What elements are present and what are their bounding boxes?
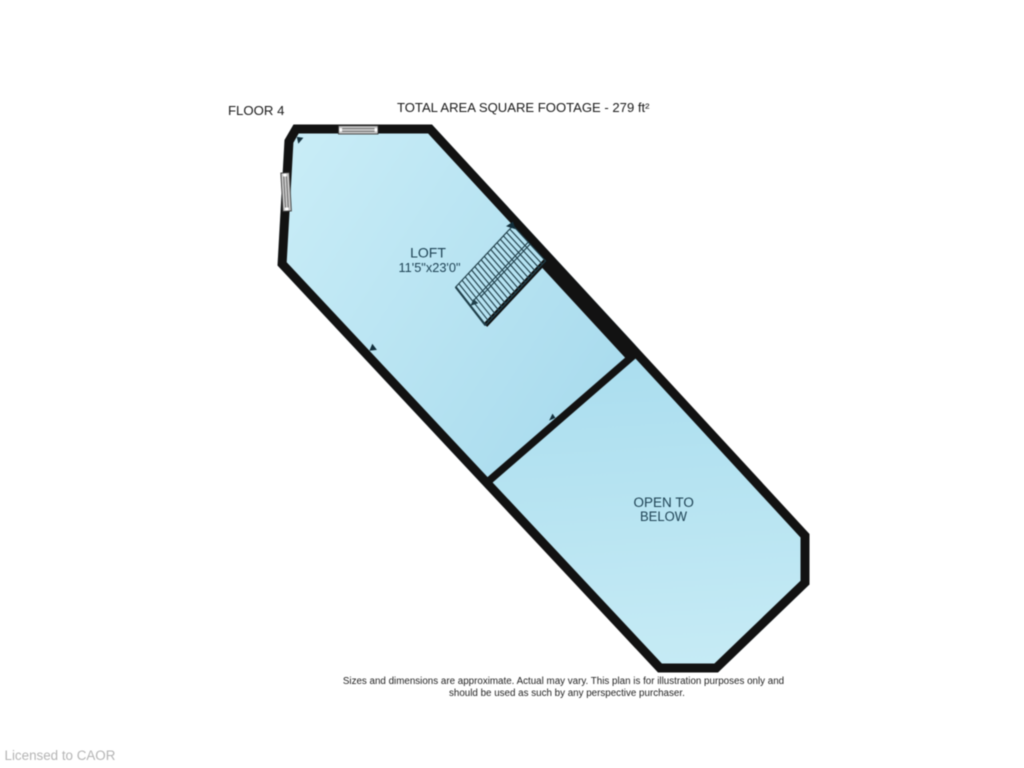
svg-text:11'5"x23'0": 11'5"x23'0" [399,261,461,275]
svg-text:BELOW: BELOW [640,509,687,524]
svg-text:TOTAL AREA SQUARE FOOTAGE - 27: TOTAL AREA SQUARE FOOTAGE - 279 ft² [397,100,650,115]
svg-text:Licensed to CAOR: Licensed to CAOR [5,748,116,763]
svg-text:should be used as such by any: should be used as such by any perspectiv… [449,688,685,699]
svg-text:Sizes and dimensions are appro: Sizes and dimensions are approximate. Ac… [343,676,784,687]
svg-text:OPEN TO: OPEN TO [634,495,694,510]
svg-text:FLOOR 4: FLOOR 4 [228,103,284,118]
svg-text:LOFT: LOFT [410,245,446,261]
